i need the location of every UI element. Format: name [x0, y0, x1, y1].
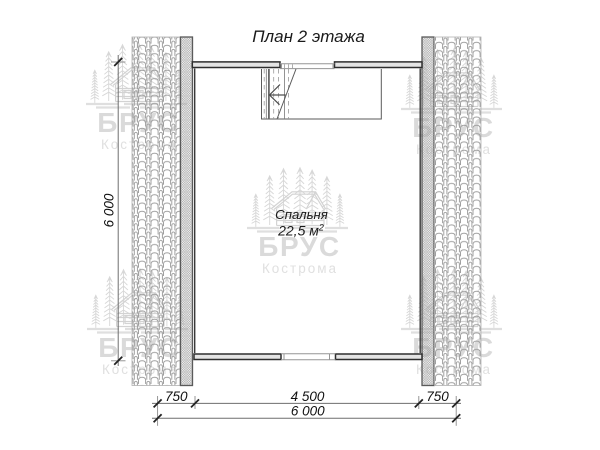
svg-text:План 2 этажа: План 2 этажа	[252, 27, 365, 46]
svg-text:Спальня: Спальня	[275, 207, 328, 222]
svg-text:6 000: 6 000	[102, 193, 117, 227]
svg-text:750: 750	[165, 389, 188, 404]
svg-text:6 000: 6 000	[291, 404, 325, 419]
svg-text:750: 750	[426, 389, 449, 404]
svg-text:22,5 м2: 22,5 м2	[277, 223, 324, 239]
svg-text:4 500: 4 500	[291, 389, 325, 404]
